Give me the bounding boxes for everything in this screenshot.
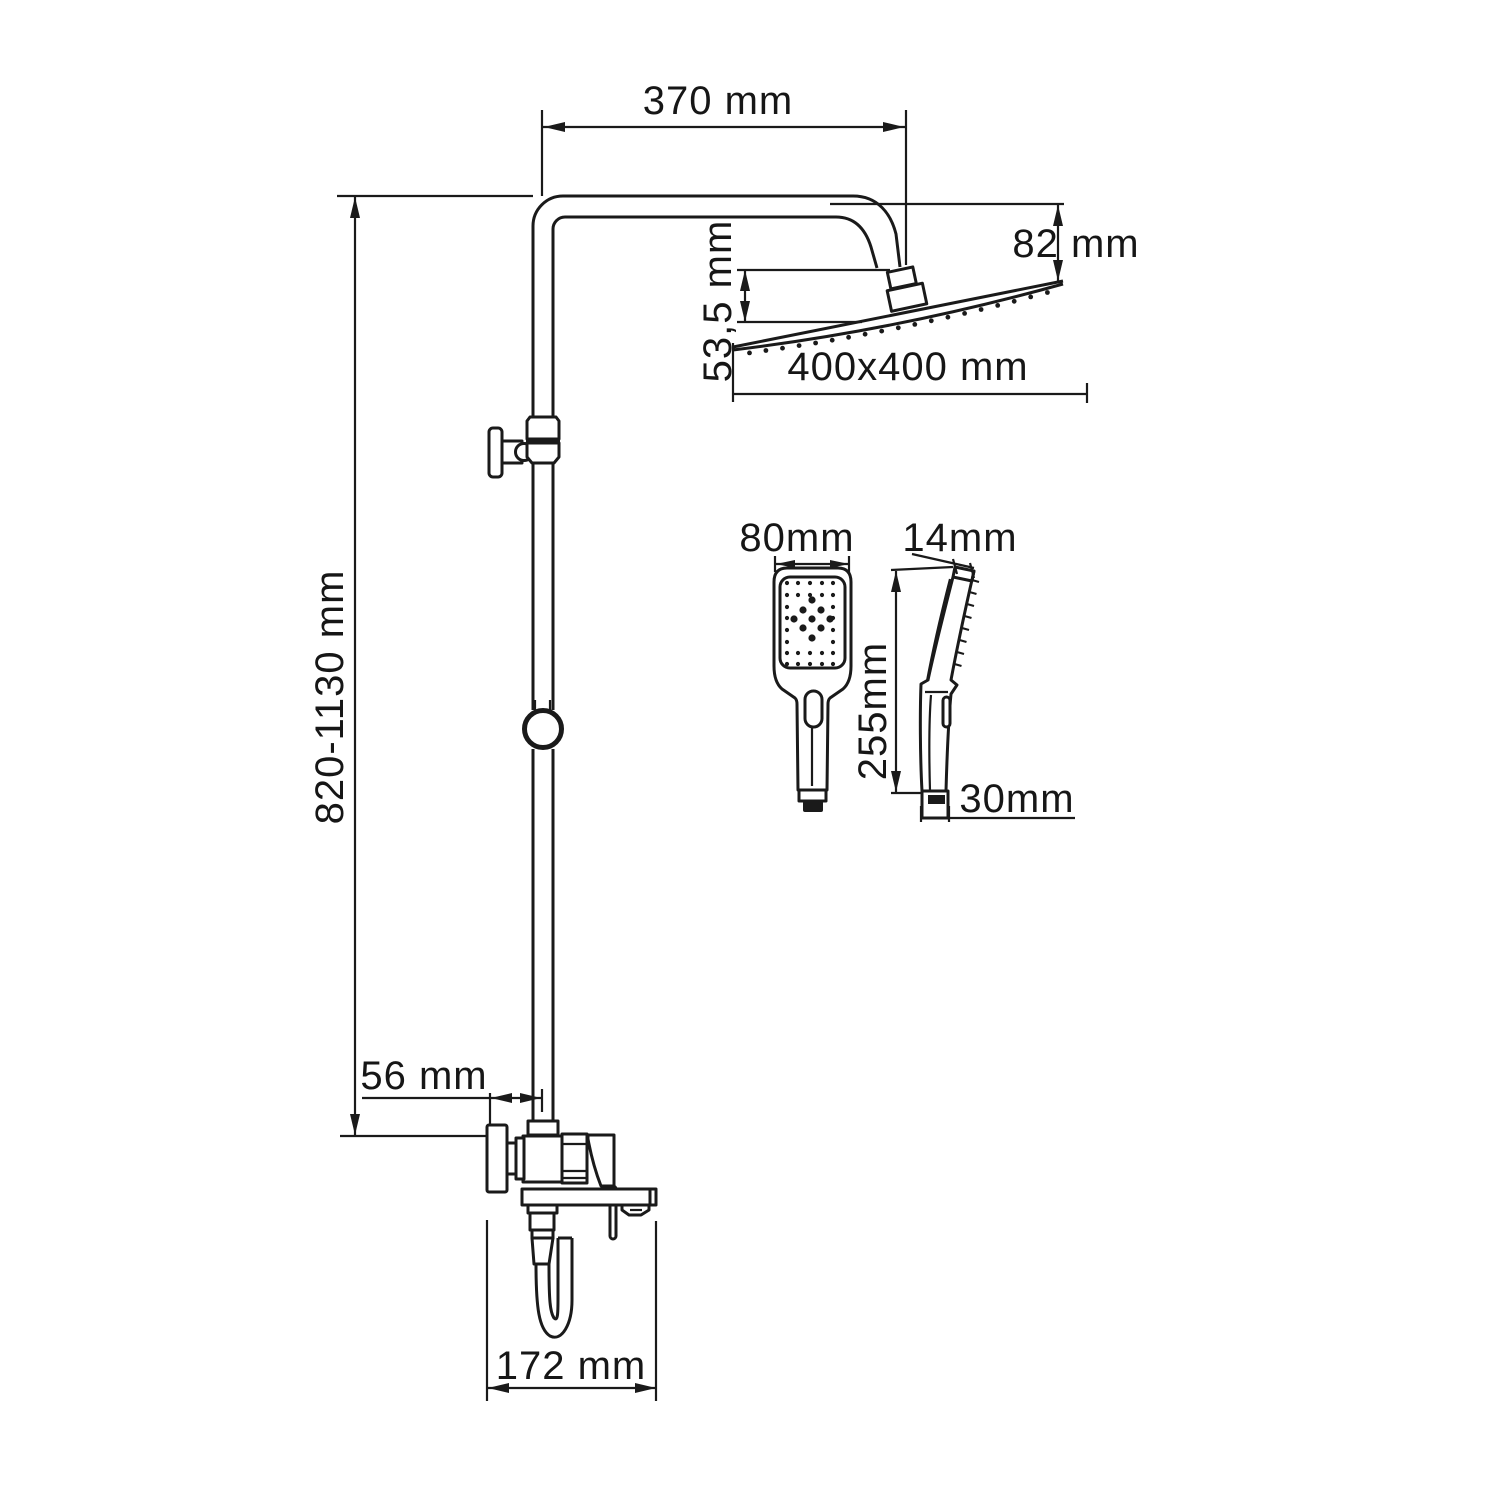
side-inlet-cap: [928, 795, 945, 804]
technical-drawing-page: 370 mm 82 mm 53,5 mm 400x400 mm 820-1130…: [0, 0, 1500, 1500]
dim-handshower-width-label: 80mm: [739, 516, 854, 560]
mixer-spout: [522, 1189, 656, 1205]
grip-ribs: [955, 580, 980, 666]
dim-handshower-length: 255mm: [851, 567, 953, 793]
dim-head-drop-label: 82 mm: [1012, 222, 1139, 266]
mixer-lever-handle: [588, 1135, 614, 1186]
dim-handshower-width: 80mm: [739, 516, 854, 572]
diverter-valve: [489, 417, 560, 477]
hose-inlet-cap: [803, 801, 823, 812]
dim-head-size-label: 400x400 mm: [787, 345, 1028, 389]
arrow-left: [544, 122, 565, 132]
shower-system-diagram: 370 mm 82 mm 53,5 mm 400x400 mm 820-1130…: [0, 0, 1500, 1500]
arrow-right: [883, 122, 904, 132]
dim-wall-offset-label: 56 mm: [360, 1054, 487, 1098]
mode-button: [805, 691, 822, 727]
slider-knob: [525, 700, 562, 748]
side-button: [943, 697, 950, 727]
dim-column-height: 820-1130 mm: [308, 196, 533, 1136]
handshower-front-view: [774, 568, 851, 812]
dim-handshower-length-label: 255mm: [851, 642, 895, 780]
hose-cone: [532, 1238, 553, 1264]
dim-head-size: 400x400 mm: [733, 343, 1087, 403]
dim-wall-offset: 56 mm: [360, 1054, 542, 1126]
dim-handshower-inlet-label: 30mm: [959, 777, 1074, 821]
wall-plate: [487, 1125, 507, 1192]
dim-spout-span-label: 172 mm: [496, 1344, 647, 1388]
dim-column-height-label: 820-1130 mm: [308, 570, 352, 825]
arm-head-connector: [883, 266, 926, 312]
dim-arm-reach-label: 370 mm: [643, 79, 794, 123]
dim-handshower-thickness-label: 14mm: [902, 516, 1017, 560]
diverter-knob: [489, 428, 502, 477]
mixer-body: [523, 1136, 562, 1182]
